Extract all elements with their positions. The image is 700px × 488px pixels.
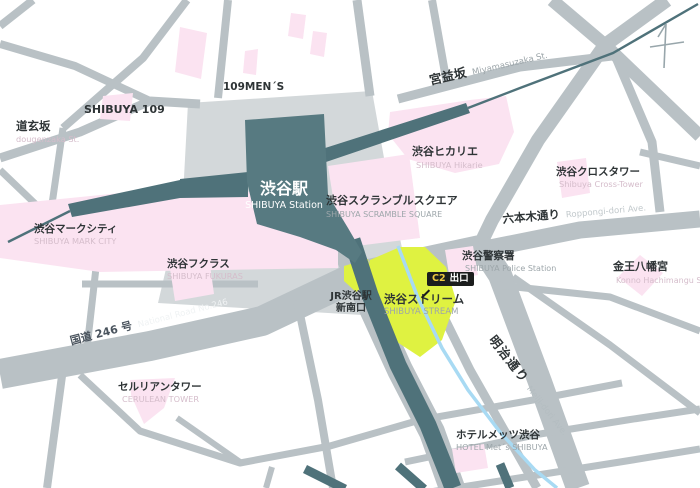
label-jr-new-south-gate: JR渋谷駅 新南口: [330, 291, 371, 314]
label-text: 109MEN´S: [223, 81, 284, 93]
label-text: SHIBUYA 109: [84, 104, 165, 117]
building-block-north-2: [243, 49, 258, 75]
exit-label: 出口: [450, 274, 469, 284]
road-top-left-corner: [0, 0, 33, 26]
shibuya-area-map: SHIBUYA 109 109MEN´S 道玄坂 dougenzaka St. …: [0, 0, 700, 488]
label-hotel-mets: ホテルメッツ渋谷 HOTEL Met´s SHIBUYA: [456, 429, 548, 452]
rail-segment-southwest: [305, 469, 345, 488]
label-cerulean-tower: セルリアンタワー CERULEAN TOWER: [118, 381, 202, 404]
label-hikarie: 渋谷ヒカリエ SHIBUYA Hikarie: [412, 146, 483, 170]
label-shibuya-109: SHIBUYA 109: [84, 104, 165, 117]
label-scramble-square: 渋谷スクランブルスクエア SHIBUYA SCRAMBLE SQUARE: [326, 195, 458, 219]
north-compass-icon: [650, 24, 684, 68]
label-cross-tower: 渋谷クロスタワー Shibuya Cross-Tower: [556, 166, 643, 189]
road-north-2: [357, 0, 370, 96]
rail-segment-south-1: [398, 466, 424, 488]
label-shibuya-station: 渋谷駅 SHIBUYA Station: [245, 180, 323, 212]
label-mark-city: 渋谷マークシティ SHIBUYA MARK CITY: [34, 223, 117, 246]
label-fukuras: 渋谷フクラス SHIBUYA FUKURAS: [167, 258, 243, 281]
road-sakurazaka-branch: [266, 467, 272, 488]
building-block-north-1: [175, 27, 207, 79]
exit-code: C2: [432, 274, 446, 284]
label-konno-shrine: 金王八幡宮 Konno Hachimangu Shrine: [613, 261, 700, 285]
rail-segment-south-2: [500, 464, 510, 488]
road-east-2: [640, 152, 700, 166]
building-block-north-4: [310, 31, 327, 57]
road-south-vertical: [297, 300, 333, 488]
label-109-mens: 109MEN´S: [223, 81, 284, 93]
exit-c2-badge: C2 出口: [427, 272, 474, 286]
label-dougenzaka: 道玄坂 dougenzaka St.: [16, 120, 79, 145]
building-block-north-3: [288, 13, 306, 39]
road-cerulean-west: [47, 376, 62, 488]
label-police-station: 渋谷警察署 SHIBUYA Police Station: [462, 250, 556, 273]
